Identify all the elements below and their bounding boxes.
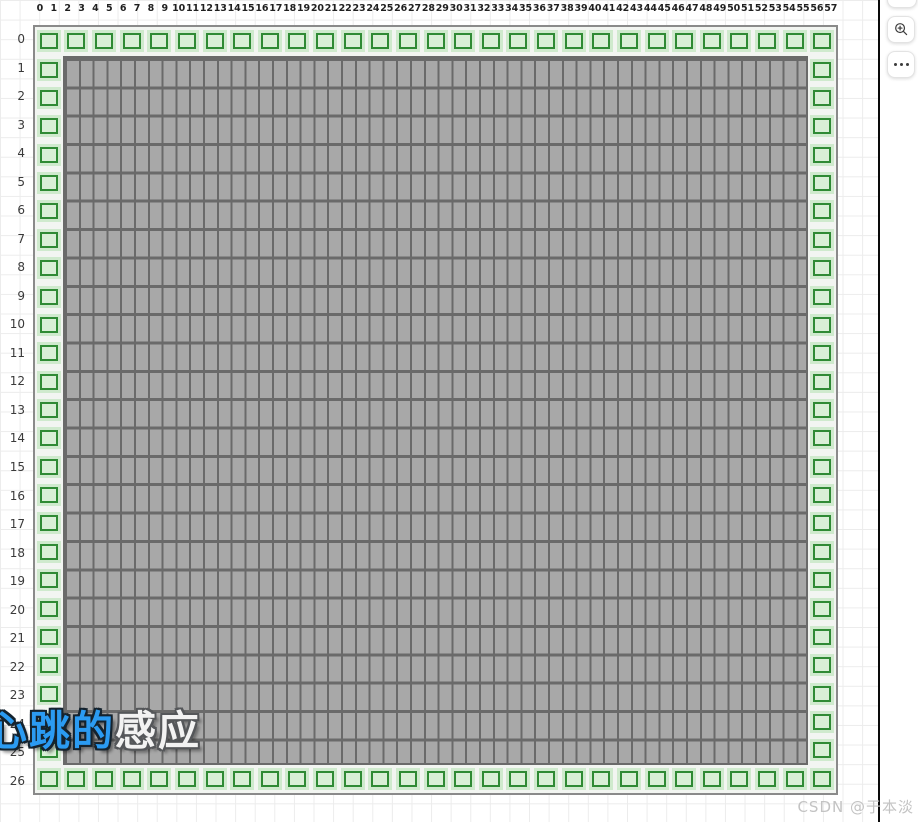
column-label: 48: [699, 0, 713, 18]
row-label: 1: [0, 54, 29, 83]
wall-cell: [562, 30, 586, 52]
wall-cell: [37, 456, 61, 478]
row-label: 9: [0, 282, 29, 311]
wall-cell: [810, 115, 834, 137]
column-label: 31: [463, 0, 477, 18]
column-label: 52: [755, 0, 769, 18]
row-label: 7: [0, 225, 29, 254]
map-interior-floor: [63, 56, 809, 765]
wall-column-right: [808, 56, 836, 765]
column-label: 25: [380, 0, 394, 18]
wall-cell: [810, 286, 834, 308]
wall-slot: [808, 84, 836, 112]
wall-cell: [810, 87, 834, 109]
wall-cell: [755, 30, 779, 52]
wall-slot: [118, 27, 146, 56]
wall-cell: [810, 484, 834, 506]
row-label: 4: [0, 139, 29, 168]
row-label: 16: [0, 481, 29, 510]
wall-slot: [146, 765, 174, 794]
column-label: 29: [435, 0, 449, 18]
wall-cell: [147, 30, 171, 52]
wall-cell: [617, 30, 641, 52]
wall-cell: [37, 427, 61, 449]
wall-slot: [35, 141, 63, 169]
cropped-top-button[interactable]: [887, 0, 917, 8]
column-label: 57: [824, 0, 838, 18]
wall-slot: [808, 396, 836, 424]
column-label: 17: [269, 0, 283, 18]
wall-cell: [810, 399, 834, 421]
wall-cell: [37, 87, 61, 109]
wall-slot: [808, 169, 836, 197]
wall-slot: [808, 282, 836, 310]
wall-slot: [808, 481, 836, 509]
column-label: 46: [671, 0, 685, 18]
wall-slot: [809, 765, 837, 794]
wall-slot: [35, 56, 63, 84]
wall-slot: [394, 765, 422, 794]
wall-cell: [37, 286, 61, 308]
wall-row-top: [35, 27, 836, 56]
wall-slot: [477, 765, 505, 794]
wall-cell: [37, 314, 61, 336]
wall-cell: [37, 59, 61, 81]
wall-cell: [285, 30, 309, 52]
wall-cell: [589, 768, 613, 790]
column-label: 28: [422, 0, 436, 18]
column-label: 49: [713, 0, 727, 18]
row-label: 0: [0, 25, 29, 54]
magnifier-plus-icon: [893, 21, 910, 38]
wall-cell: [37, 371, 61, 393]
column-label: 5: [102, 0, 116, 18]
wall-cell: [810, 144, 834, 166]
wall-cell: [258, 30, 282, 52]
wall-slot: [808, 367, 836, 395]
column-label: 11: [186, 0, 200, 18]
wall-cell: [368, 768, 392, 790]
wall-slot: [726, 765, 754, 794]
wall-cell: [810, 541, 834, 563]
wall-cell: [810, 711, 834, 733]
wall-cell: [396, 768, 420, 790]
column-label: 20: [311, 0, 325, 18]
wall-cell: [175, 30, 199, 52]
wall-slot: [90, 27, 118, 56]
row-label: 2: [0, 82, 29, 111]
wall-cell: [120, 30, 144, 52]
column-label: 54: [782, 0, 796, 18]
wall-slot: [698, 765, 726, 794]
row-label: 19: [0, 567, 29, 596]
column-label: 16: [255, 0, 269, 18]
wall-cell: [37, 512, 61, 534]
wall-cell: [617, 768, 641, 790]
wall-cell: [700, 30, 724, 52]
column-label: 32: [477, 0, 491, 18]
wall-slot: [173, 765, 201, 794]
wall-slot: [118, 765, 146, 794]
wall-slot: [808, 566, 836, 594]
logo-watermark-light-text: 感应: [115, 707, 201, 755]
wall-slot: [808, 594, 836, 622]
row-label: 20: [0, 595, 29, 624]
wall-cell: [37, 115, 61, 137]
wall-slot: [35, 623, 63, 651]
column-label: 44: [644, 0, 658, 18]
wall-slot: [311, 27, 339, 56]
wall-slot: [808, 311, 836, 339]
wall-cell: [755, 768, 779, 790]
wall-cell: [783, 30, 807, 52]
row-label: 14: [0, 424, 29, 453]
wall-slot: [284, 765, 312, 794]
wall-slot: [808, 424, 836, 452]
wall-cell: [645, 768, 669, 790]
column-header-row: 0123456789101112131415161718192021222324…: [33, 0, 838, 18]
wall-slot: [173, 27, 201, 56]
wall-cell: [810, 654, 834, 676]
ellipsis-icon: [894, 63, 909, 66]
wall-slot: [201, 27, 229, 56]
row-label: 22: [0, 652, 29, 681]
wall-slot: [228, 765, 256, 794]
wall-slot: [394, 27, 422, 56]
column-label: 43: [630, 0, 644, 18]
map-canvas: 0123456789101112131415161718192021222324…: [0, 0, 878, 822]
column-label: 56: [810, 0, 824, 18]
wall-cell: [783, 768, 807, 790]
wall-slot: [505, 765, 533, 794]
wall-slot: [35, 112, 63, 140]
wall-cell: [37, 342, 61, 364]
wall-slot: [808, 226, 836, 254]
wall-slot: [670, 765, 698, 794]
wall-cell: [506, 30, 530, 52]
column-label: 12: [200, 0, 214, 18]
wall-slot: [808, 708, 836, 736]
wall-slot: [35, 27, 63, 56]
wall-slot: [35, 396, 63, 424]
wall-cell: [700, 768, 724, 790]
row-label: 15: [0, 453, 29, 482]
wall-slot: [449, 765, 477, 794]
column-label: 33: [491, 0, 505, 18]
wall-slot: [588, 765, 616, 794]
wall-slot: [808, 254, 836, 282]
column-label: 53: [768, 0, 782, 18]
column-label: 21: [324, 0, 338, 18]
wall-slot: [808, 56, 836, 84]
wall-slot: [808, 453, 836, 481]
row-label-column: 0123456789101112131415161718192021222324…: [0, 25, 29, 795]
column-label: 36: [533, 0, 547, 18]
column-label: 1: [47, 0, 61, 18]
column-label: 38: [560, 0, 574, 18]
wall-slot: [532, 765, 560, 794]
wall-cell: [810, 768, 834, 790]
wall-slot: [808, 623, 836, 651]
wall-slot: [808, 651, 836, 679]
wall-cell: [727, 768, 751, 790]
column-label: 3: [75, 0, 89, 18]
column-label: 45: [657, 0, 671, 18]
wall-slot: [505, 27, 533, 56]
row-label: 26: [0, 766, 29, 795]
column-label: 2: [61, 0, 75, 18]
wall-slot: [35, 594, 63, 622]
wall-slot: [63, 765, 91, 794]
row-label: 11: [0, 339, 29, 368]
wall-cell: [230, 30, 254, 52]
wall-slot: [560, 27, 588, 56]
wall-cell: [120, 768, 144, 790]
wall-cell: [37, 541, 61, 563]
wall-slot: [367, 27, 395, 56]
wall-slot: [256, 765, 284, 794]
csdn-watermark: CSDN @于本淡: [797, 796, 914, 817]
wall-cell: [92, 768, 116, 790]
wall-cell: [645, 30, 669, 52]
wall-cell: [285, 768, 309, 790]
column-label: 41: [602, 0, 616, 18]
wall-slot: [615, 765, 643, 794]
wall-cell: [810, 257, 834, 279]
column-label: 0: [33, 0, 47, 18]
row-label: 21: [0, 624, 29, 653]
wall-cell: [424, 30, 448, 52]
column-label: 6: [116, 0, 130, 18]
wall-cell: [313, 30, 337, 52]
row-label: 8: [0, 253, 29, 282]
column-label: 37: [546, 0, 560, 18]
wall-cell: [37, 768, 61, 790]
wall-cell: [810, 200, 834, 222]
wall-slot: [35, 765, 63, 794]
column-label: 47: [685, 0, 699, 18]
wall-cell: [64, 30, 88, 52]
wall-cell: [810, 427, 834, 449]
column-label: 24: [366, 0, 380, 18]
wall-cell: [810, 456, 834, 478]
wall-cell: [810, 739, 834, 761]
wall-cell: [341, 768, 365, 790]
wall-column-left: [35, 56, 63, 765]
column-label: 40: [588, 0, 602, 18]
wall-cell: [479, 30, 503, 52]
wall-slot: [808, 736, 836, 764]
wall-cell: [64, 768, 88, 790]
wall-cell: [37, 598, 61, 620]
wall-slot: [422, 765, 450, 794]
wall-slot: [588, 27, 616, 56]
wall-slot: [615, 27, 643, 56]
wall-slot: [228, 27, 256, 56]
wall-slot: [35, 282, 63, 310]
wall-slot: [35, 566, 63, 594]
wall-cell: [534, 30, 558, 52]
wall-slot: [284, 27, 312, 56]
wall-cell: [424, 768, 448, 790]
column-label: 42: [616, 0, 630, 18]
column-label: 18: [283, 0, 297, 18]
wall-slot: [35, 84, 63, 112]
column-label: 39: [574, 0, 588, 18]
wall-cell: [37, 569, 61, 591]
wall-row-bottom: [35, 765, 836, 794]
wall-cell: [313, 768, 337, 790]
wall-cell: [672, 768, 696, 790]
wall-slot: [35, 453, 63, 481]
column-label: 4: [89, 0, 103, 18]
column-label: 26: [394, 0, 408, 18]
column-label: 9: [158, 0, 172, 18]
wall-slot: [643, 765, 671, 794]
column-label: 14: [227, 0, 241, 18]
wall-slot: [367, 765, 395, 794]
wall-slot: [35, 481, 63, 509]
wall-slot: [808, 509, 836, 537]
wall-cell: [37, 626, 61, 648]
wall-cell: [672, 30, 696, 52]
column-label: 35: [519, 0, 533, 18]
wall-slot: [35, 169, 63, 197]
wall-slot: [35, 311, 63, 339]
wall-slot: [808, 197, 836, 225]
wall-cell: [37, 172, 61, 194]
wall-cell: [589, 30, 613, 52]
wall-cell: [396, 30, 420, 52]
wall-cell: [810, 512, 834, 534]
wall-cell: [479, 768, 503, 790]
wall-slot: [339, 27, 367, 56]
wall-cell: [810, 569, 834, 591]
wall-cell: [37, 399, 61, 421]
column-label: 8: [144, 0, 158, 18]
wall-cell: [727, 30, 751, 52]
wall-slot: [449, 27, 477, 56]
wall-cell: [451, 768, 475, 790]
column-label: 19: [297, 0, 311, 18]
wall-slot: [781, 765, 809, 794]
column-label: 13: [213, 0, 227, 18]
wall-slot: [726, 27, 754, 56]
wall-cell: [203, 30, 227, 52]
wall-cell: [147, 768, 171, 790]
more-options-button[interactable]: [887, 51, 915, 78]
wall-slot: [670, 27, 698, 56]
wall-cell: [451, 30, 475, 52]
wall-cell: [368, 30, 392, 52]
wall-slot: [781, 27, 809, 56]
wall-cell: [562, 768, 586, 790]
wall-cell: [810, 172, 834, 194]
wall-cell: [810, 371, 834, 393]
column-label: 10: [172, 0, 186, 18]
wall-slot: [808, 679, 836, 707]
logo-watermark-blue-text: 心跳的: [0, 707, 115, 755]
column-label: 50: [727, 0, 741, 18]
wall-slot: [35, 509, 63, 537]
wall-slot: [35, 226, 63, 254]
row-label: 6: [0, 196, 29, 225]
grid-map: [33, 25, 838, 795]
wall-slot: [35, 651, 63, 679]
wall-slot: [63, 27, 91, 56]
column-label: 51: [741, 0, 755, 18]
wall-slot: [35, 254, 63, 282]
wall-cell: [810, 683, 834, 705]
wall-slot: [201, 765, 229, 794]
wall-slot: [808, 538, 836, 566]
column-label: 34: [505, 0, 519, 18]
wall-cell: [810, 626, 834, 648]
wall-cell: [810, 30, 834, 52]
column-label: 55: [796, 0, 810, 18]
row-label: 17: [0, 510, 29, 539]
column-label: 23: [352, 0, 366, 18]
wall-cell: [810, 342, 834, 364]
wall-cell: [37, 257, 61, 279]
wall-slot: [35, 339, 63, 367]
wall-cell: [37, 144, 61, 166]
wall-cell: [506, 768, 530, 790]
wall-slot: [422, 27, 450, 56]
row-label: 18: [0, 538, 29, 567]
wall-cell: [203, 768, 227, 790]
wall-cell: [810, 598, 834, 620]
wall-cell: [37, 30, 61, 52]
wall-slot: [35, 424, 63, 452]
wall-slot: [808, 339, 836, 367]
wall-slot: [35, 367, 63, 395]
row-label: 13: [0, 396, 29, 425]
wall-slot: [311, 765, 339, 794]
column-label: 27: [408, 0, 422, 18]
row-label: 10: [0, 310, 29, 339]
wall-slot: [477, 27, 505, 56]
side-panel: [880, 0, 918, 822]
wall-slot: [35, 538, 63, 566]
wall-slot: [753, 765, 781, 794]
wall-slot: [698, 27, 726, 56]
wall-cell: [534, 768, 558, 790]
column-label: 22: [338, 0, 352, 18]
column-label: 15: [241, 0, 255, 18]
wall-slot: [35, 197, 63, 225]
row-label: 12: [0, 367, 29, 396]
wall-cell: [810, 229, 834, 251]
wall-cell: [92, 30, 116, 52]
wall-slot: [532, 27, 560, 56]
wall-slot: [643, 27, 671, 56]
wall-slot: [339, 765, 367, 794]
wall-cell: [258, 768, 282, 790]
wall-cell: [37, 200, 61, 222]
wall-slot: [808, 141, 836, 169]
wall-cell: [175, 768, 199, 790]
row-label: 3: [0, 111, 29, 140]
zoom-in-button[interactable]: [887, 16, 915, 43]
wall-cell: [37, 654, 61, 676]
row-label: 5: [0, 168, 29, 197]
column-label: 30: [449, 0, 463, 18]
column-label: 7: [130, 0, 144, 18]
wall-cell: [810, 314, 834, 336]
wall-slot: [809, 27, 837, 56]
wall-cell: [37, 484, 61, 506]
